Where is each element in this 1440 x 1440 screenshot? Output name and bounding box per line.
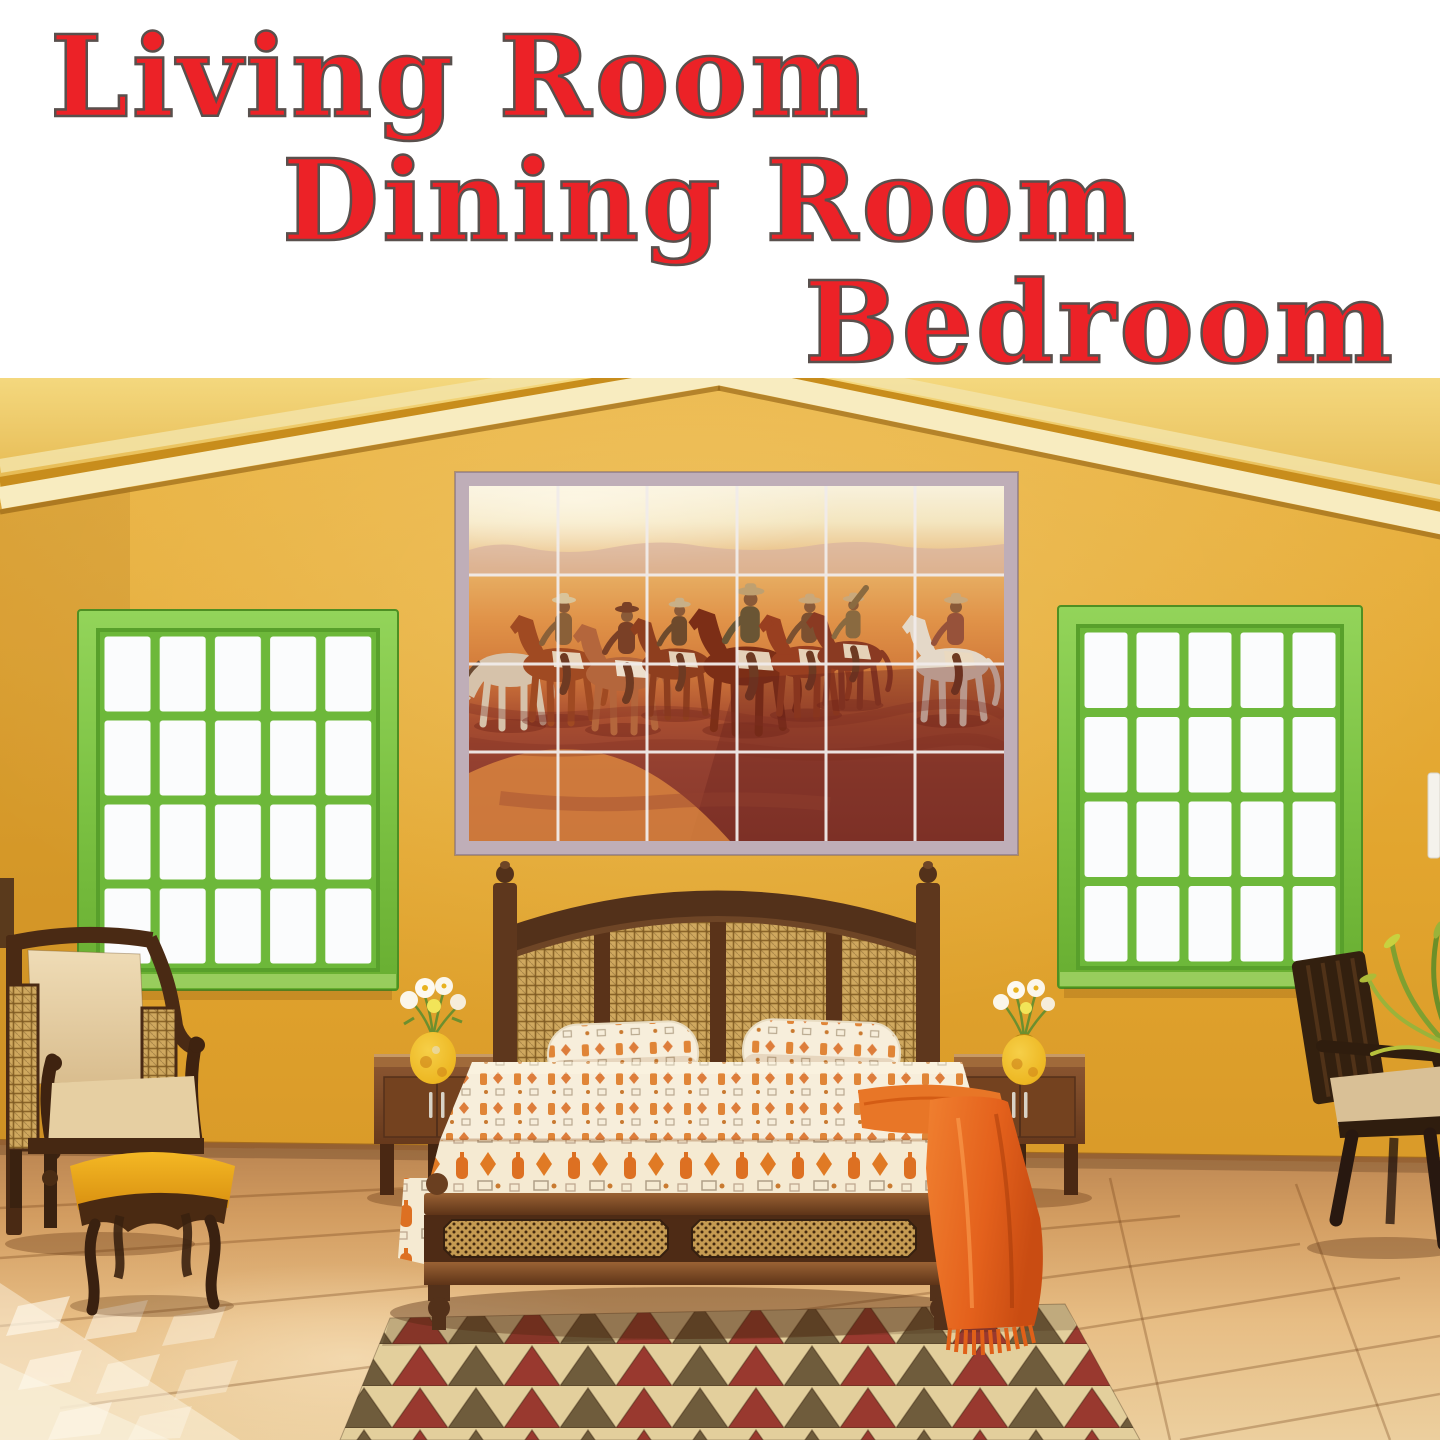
floor-lamp xyxy=(1428,773,1440,858)
chair-leg xyxy=(10,1150,22,1208)
door-handle xyxy=(429,1092,433,1118)
room-label-living: Living Room xyxy=(50,22,872,134)
bedspread-front-band xyxy=(425,1140,1005,1198)
poster: Living Room Dining Room Bedroom xyxy=(0,0,1440,1440)
right-window xyxy=(1058,606,1362,998)
window-panes xyxy=(1080,628,1340,966)
room-label-bedroom: Bedroom xyxy=(804,268,1396,380)
footboard-cane-panel xyxy=(692,1220,916,1257)
window-panes xyxy=(100,632,376,968)
footstool-leg xyxy=(210,1220,215,1304)
bed-post-left xyxy=(493,883,517,1083)
tile-mural xyxy=(455,472,1018,855)
bed-post-right xyxy=(916,883,940,1083)
chair-leg xyxy=(44,1154,57,1228)
cane-side-panel xyxy=(8,985,38,1150)
door-handle xyxy=(1024,1092,1028,1118)
footstool-leg xyxy=(90,1224,95,1310)
footboard-cane-panel xyxy=(444,1220,668,1257)
title-banner: Living Room Dining Room Bedroom xyxy=(0,0,1440,378)
bedroom-photo xyxy=(0,378,1440,1440)
door-handle xyxy=(1012,1092,1016,1118)
seat-cushion xyxy=(48,1076,200,1146)
room-label-dining: Dining Room xyxy=(282,146,1138,258)
footboard-knob xyxy=(426,1173,448,1195)
door-handle xyxy=(441,1092,445,1118)
